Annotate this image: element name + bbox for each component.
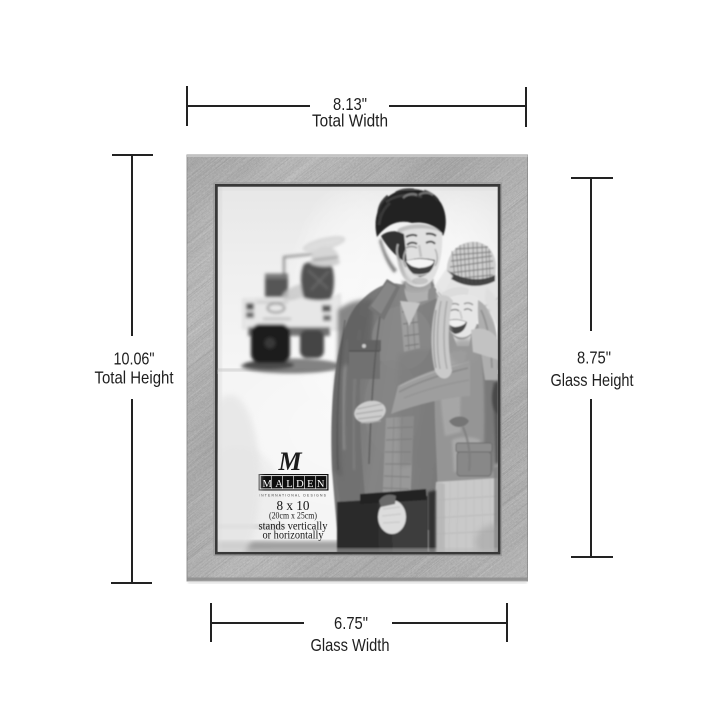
svg-text:or horizontally: or horizontally (263, 530, 324, 542)
svg-text:Glass Width: Glass Width (311, 635, 390, 655)
svg-text:(20cm x 25cm): (20cm x 25cm) (269, 511, 317, 521)
svg-text:6.75": 6.75" (334, 613, 368, 633)
svg-text:INTERNATIONAL DESIGNS: INTERNATIONAL DESIGNS (259, 494, 327, 498)
svg-text:Total Width: Total Width (312, 111, 388, 131)
svg-text:8.75": 8.75" (577, 348, 611, 368)
svg-text:Total Height: Total Height (95, 368, 174, 388)
svg-text:M: M (277, 447, 302, 476)
svg-text:Glass Height: Glass Height (551, 370, 634, 390)
svg-text:10.06": 10.06" (114, 349, 155, 369)
